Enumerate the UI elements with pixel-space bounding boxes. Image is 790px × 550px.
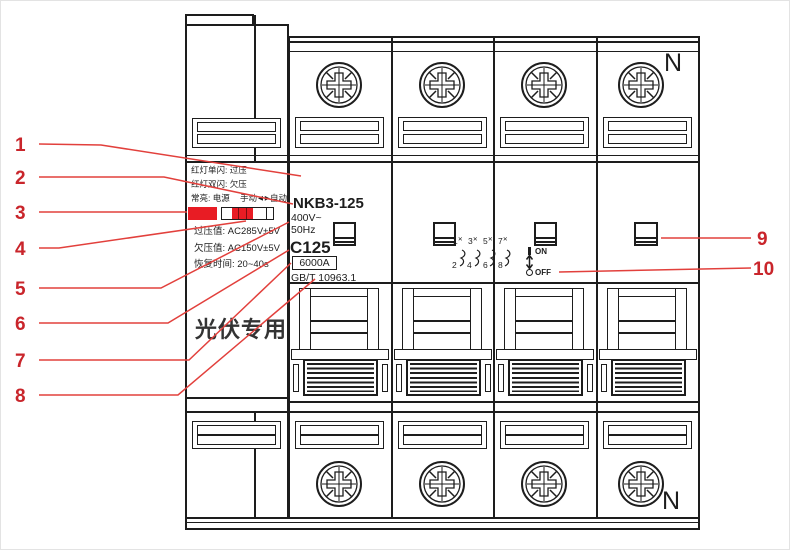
slider-knob-line [238, 208, 239, 219]
mode-arrows-icon: ◀ ▶ [258, 195, 270, 202]
pv-dedicated-label: 光伏专用 [195, 317, 287, 342]
callout-3: 3 [15, 203, 26, 225]
slider-knob [232, 208, 253, 219]
handle-ridge [435, 237, 454, 239]
legend-line-1: 红灯单闪: 过压 [191, 166, 247, 176]
breaking-capacity: 6000A [292, 256, 337, 270]
on-label: ON [535, 247, 547, 256]
mode-manual-label: 手动 [240, 194, 257, 204]
screw-terminal-icon [317, 63, 361, 107]
on-off-arrow-icon [527, 256, 533, 269]
rated-frequency: 50Hz [291, 224, 316, 236]
handle-ridge [536, 241, 555, 243]
slider-tick [266, 208, 267, 219]
wiring-terminal-1: 1✕ [453, 237, 463, 247]
pole-3-switch-handle [534, 222, 557, 246]
callout-4: 4 [15, 239, 26, 261]
off-position-circle-icon [526, 269, 533, 276]
rated-voltage: 400V~ [291, 212, 322, 224]
status-label: 常亮: 电源 [191, 194, 230, 204]
linework-layer [1, 1, 790, 550]
overvoltage-spec: 过压值: AC285V±5V [194, 227, 280, 238]
slider-knob-line [246, 208, 247, 219]
handle-ridge [435, 241, 454, 243]
wiring-terminal-3: 3✕ [468, 237, 478, 247]
handle-ridge [536, 237, 555, 239]
undervoltage-spec: 欠压值: AC150V±5V [194, 244, 280, 255]
callout-10: 10 [753, 259, 774, 281]
neutral-label-bottom: N [662, 487, 680, 516]
wiring-terminal-4: 4 [467, 261, 472, 271]
wiring-terminal-6: 6 [483, 261, 488, 271]
callout-2: 2 [15, 168, 26, 190]
callout-6: 6 [15, 314, 26, 336]
standard-number: GB/T 10963.1 [291, 272, 356, 284]
wiring-terminal-7: 7✕ [498, 237, 508, 247]
handle-ridge [335, 241, 354, 243]
breaker-diagram: 红灯单闪: 过压 红灯双闪: 欠压 常亮: 电源 手动 ◀ ▶ 自动 过压值: … [0, 0, 790, 550]
screw-terminal-icon [420, 63, 464, 107]
callout-5: 5 [15, 279, 26, 301]
terminal-cross-icon: ✕ [458, 237, 463, 243]
wiring-terminal-8: 8 [498, 261, 503, 271]
manual-auto-slider [221, 207, 274, 220]
screw-terminal-icon [522, 63, 566, 107]
off-label: OFF [535, 268, 551, 277]
on-position-bar-icon [528, 247, 531, 255]
pole-4-switch-handle [634, 222, 658, 246]
callout-9: 9 [757, 229, 768, 251]
terminal-cross-icon: ✕ [488, 237, 493, 243]
callout-8: 8 [15, 386, 26, 408]
screw-terminal-icon [317, 462, 361, 506]
handle-ridge [636, 241, 656, 243]
handle-ridge [636, 237, 656, 239]
power-led-indicator [188, 207, 217, 220]
model-number: NKB3-125 [293, 195, 364, 212]
mode-auto-label: 自动 [270, 194, 287, 204]
recovery-time-spec: 恢复时间: 20~40s [194, 260, 269, 271]
screw-terminal-icon [619, 63, 663, 107]
terminal-cross-icon: ✕ [503, 237, 508, 243]
screw-terminal-icon [619, 462, 663, 506]
handle-ridge [335, 237, 354, 239]
wiring-terminal-2: 2 [452, 261, 457, 271]
callout-1: 1 [15, 135, 26, 157]
wiring-terminal-5: 5✕ [483, 237, 493, 247]
legend-line-2: 红灯双闪: 欠压 [191, 180, 247, 190]
pole-1-switch-handle [333, 222, 356, 246]
screw-terminal-icon [522, 462, 566, 506]
neutral-label-top: N [664, 49, 682, 78]
curve-current-rating: C125 [290, 238, 331, 258]
callout-7: 7 [15, 351, 26, 373]
terminal-cross-icon: ✕ [473, 237, 478, 243]
screw-terminal-icon [420, 462, 464, 506]
